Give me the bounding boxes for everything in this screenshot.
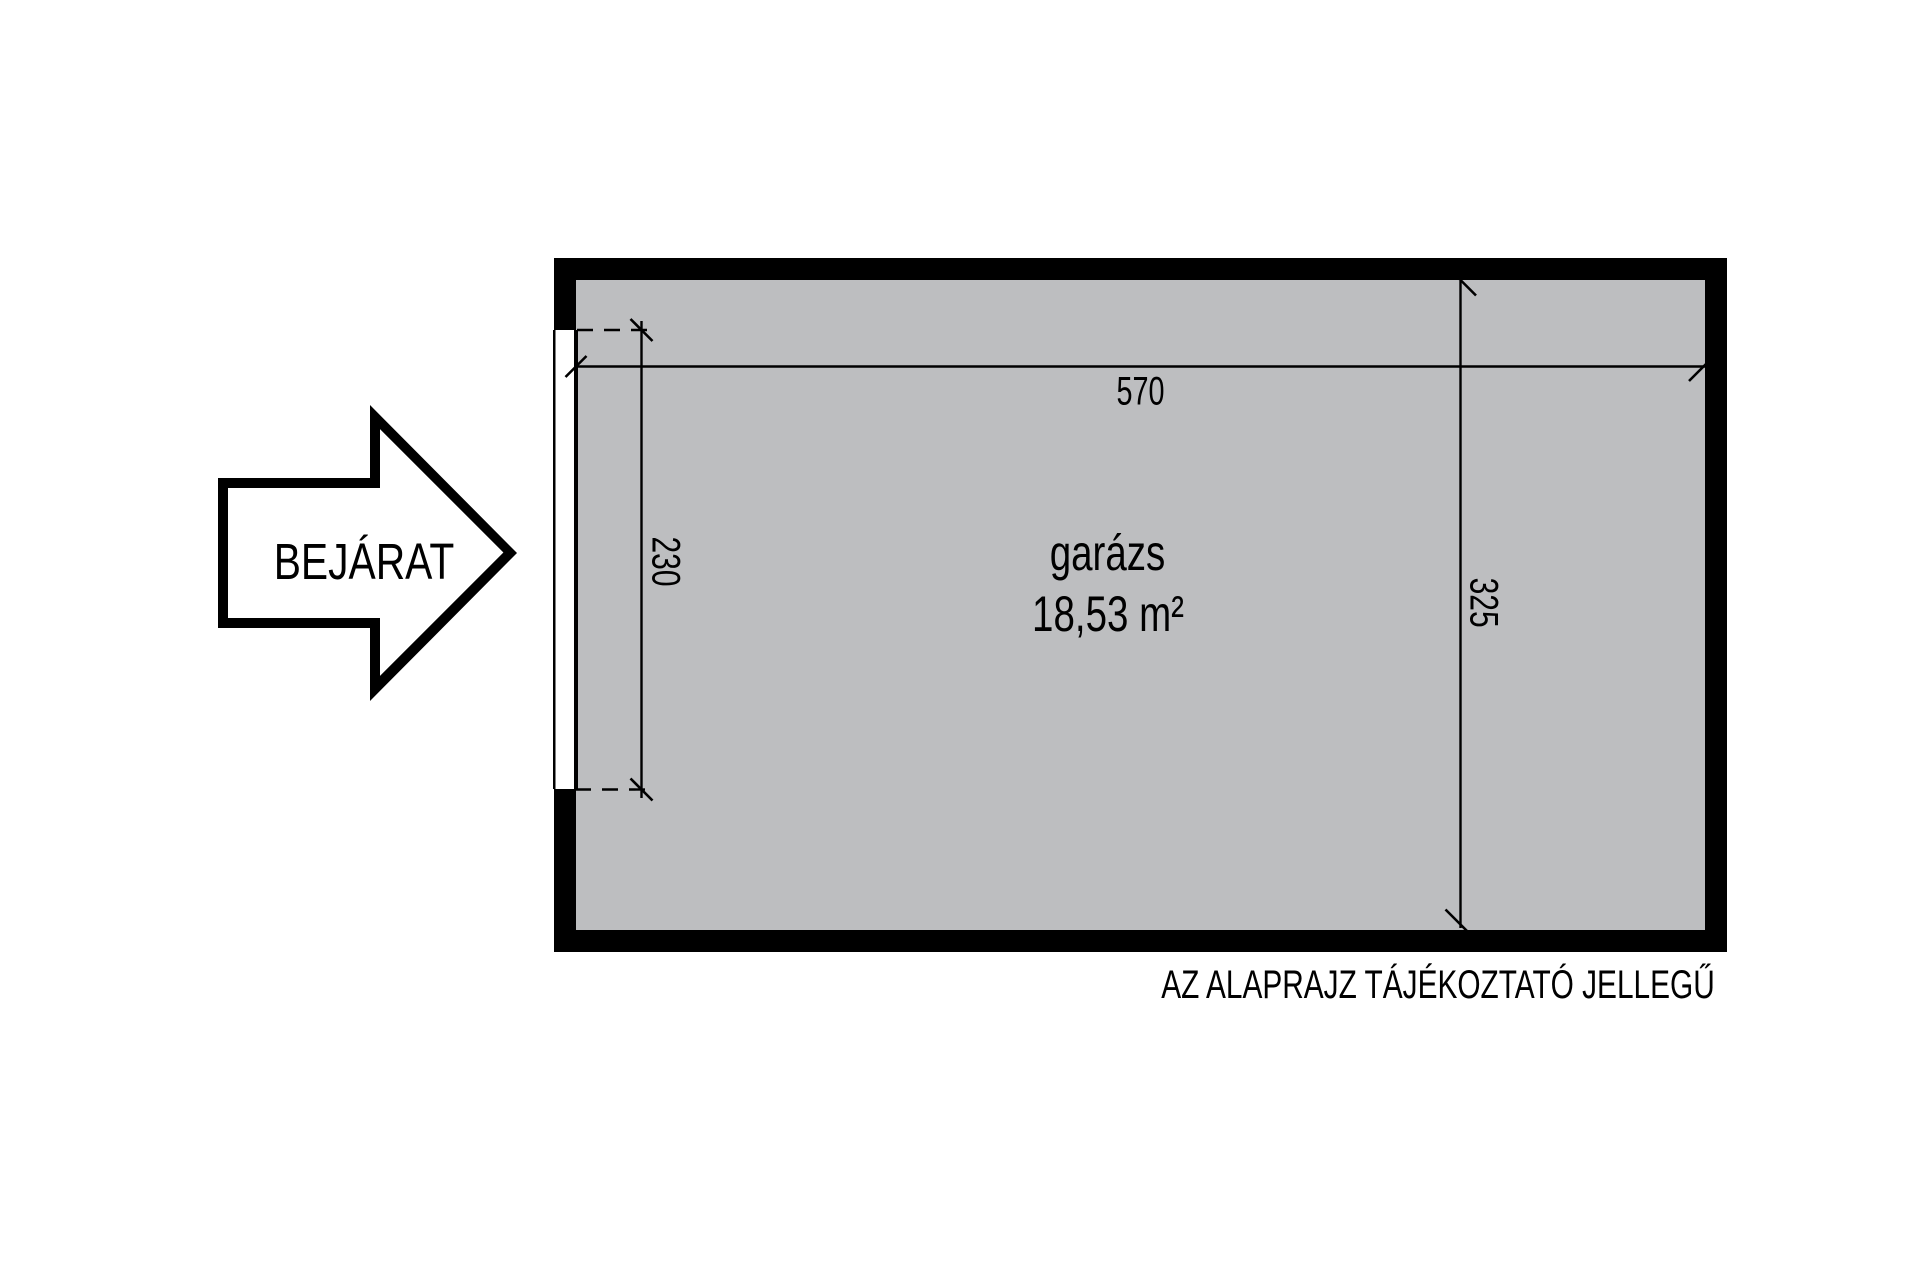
svg-text:garázs: garázs bbox=[1050, 526, 1166, 581]
svg-text:18,53 m²: 18,53 m² bbox=[1032, 587, 1184, 642]
svg-text:570: 570 bbox=[1116, 369, 1164, 414]
svg-text:230: 230 bbox=[643, 536, 687, 586]
svg-text:325: 325 bbox=[1461, 578, 1505, 628]
svg-text:BEJÁRAT: BEJÁRAT bbox=[274, 533, 455, 590]
svg-text:AZ ALAPRAJZ TÁJÉKOZTATÓ JELLEG: AZ ALAPRAJZ TÁJÉKOZTATÓ JELLEGŰ bbox=[1161, 963, 1714, 1007]
